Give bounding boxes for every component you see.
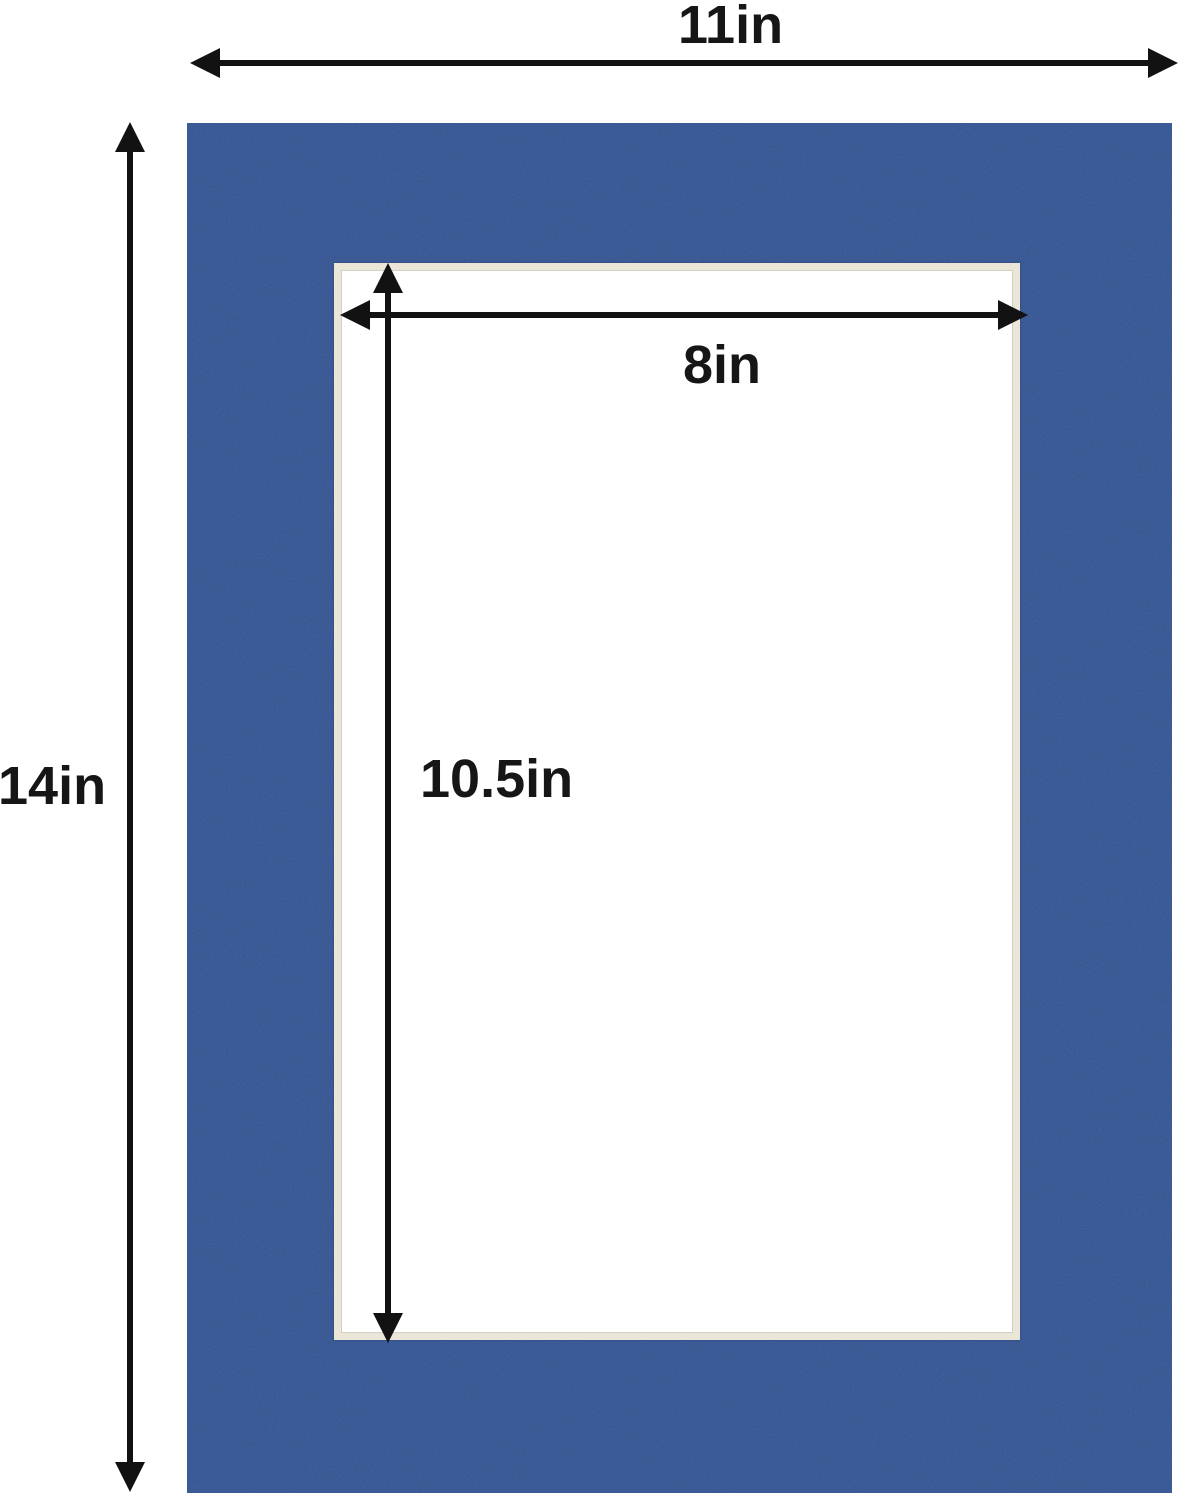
outer-height-label: 14in	[0, 759, 106, 813]
arrow-down-head-icon	[115, 1462, 145, 1492]
arrow-shaft	[127, 146, 133, 1468]
opening-width-dimension-arrow	[340, 299, 1028, 331]
mat-dimension-diagram: 11in 14in 8in 10.5in	[0, 0, 1186, 1500]
opening-height-dimension-arrow	[372, 263, 404, 1343]
arrow-right-head-icon	[1148, 48, 1178, 78]
opening-width-label: 8in	[683, 338, 761, 392]
arrow-right-head-icon	[998, 300, 1028, 330]
outer-width-label: 11in	[678, 0, 783, 52]
arrow-shaft	[214, 60, 1154, 66]
arrow-down-head-icon	[373, 1313, 403, 1343]
outer-height-dimension-arrow	[114, 122, 146, 1492]
opening-height-label: 10.5in	[420, 752, 573, 806]
arrow-shaft	[385, 287, 391, 1319]
arrow-shaft	[364, 312, 1004, 318]
